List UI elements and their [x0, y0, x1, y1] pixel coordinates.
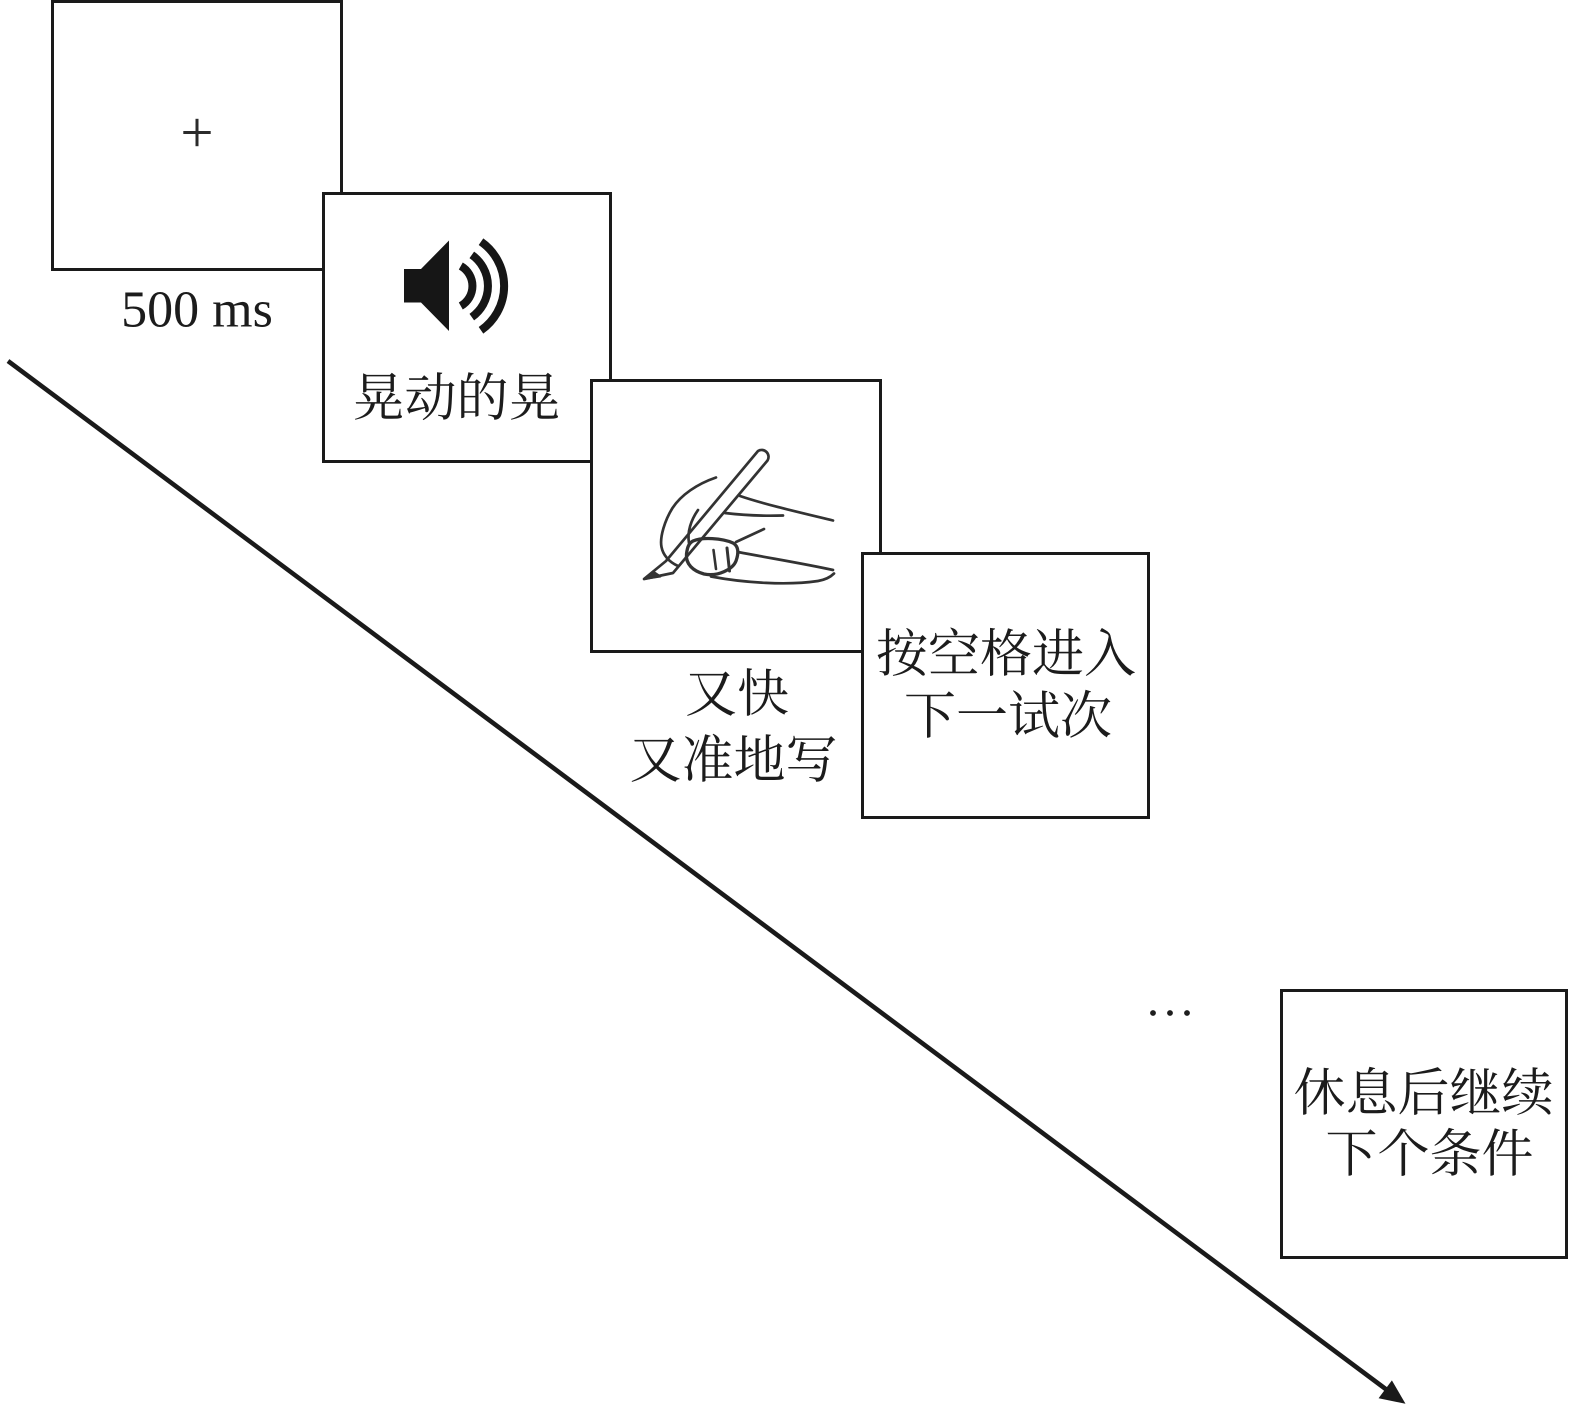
svg-text:500 ms: 500 ms — [121, 282, 273, 339]
